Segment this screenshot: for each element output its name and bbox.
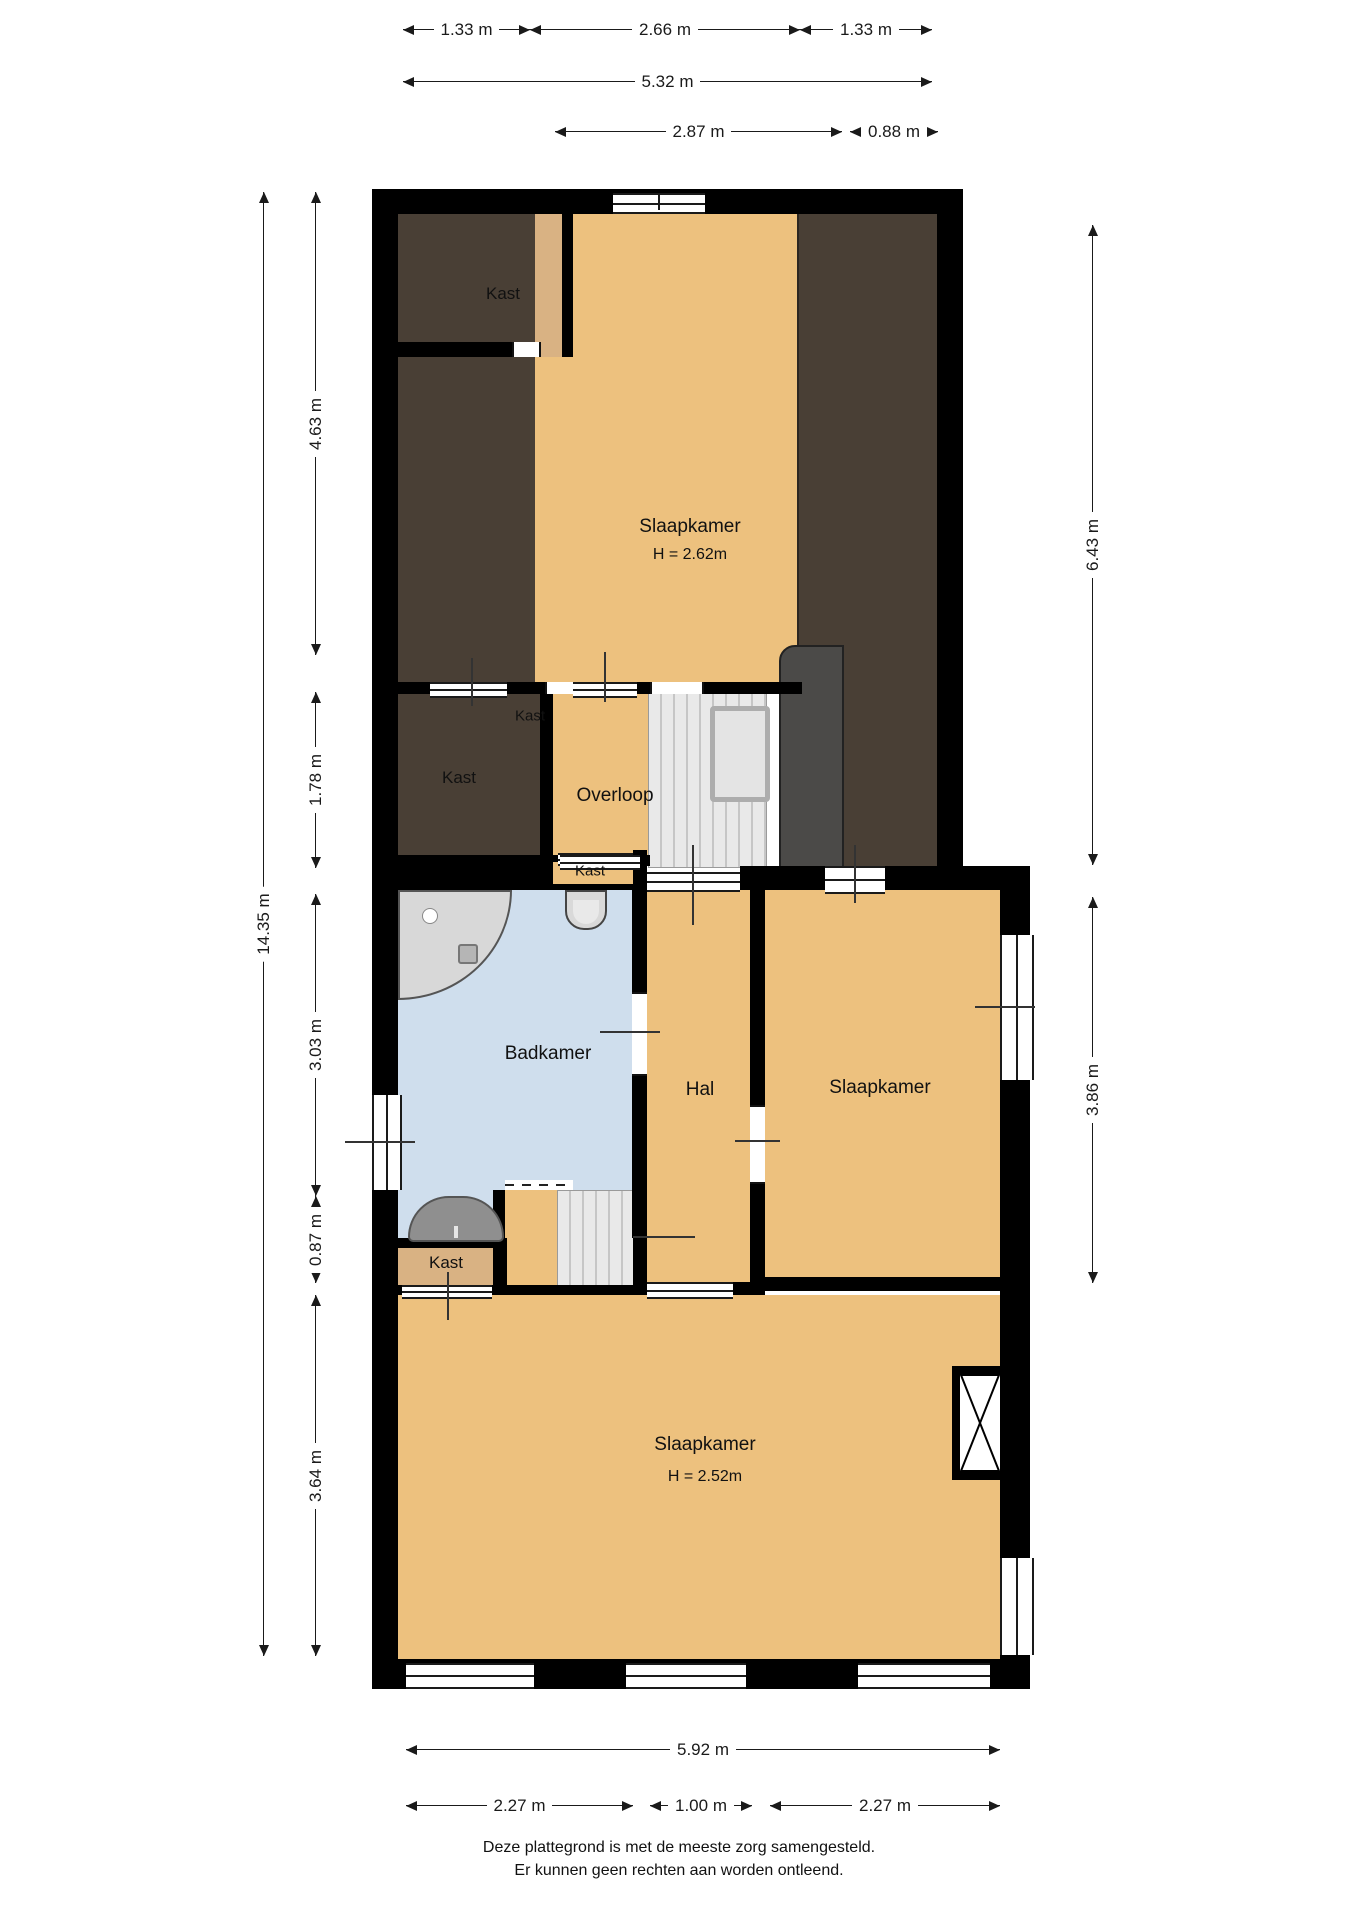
wall-attic-south — [637, 682, 650, 694]
dim-arrow — [406, 1745, 417, 1755]
dim-arrow — [311, 192, 321, 203]
window-symbol — [1000, 1558, 1034, 1655]
room-label-kast-mid: Kast — [442, 768, 476, 788]
dim-arrow — [989, 1745, 1000, 1755]
dim-arrow — [555, 127, 566, 137]
shower-head — [422, 908, 438, 924]
dim-arrow — [1088, 225, 1098, 236]
dim-arrow — [259, 192, 269, 203]
dim-label: 3.64 m — [306, 1443, 326, 1509]
door-symbol — [650, 682, 704, 694]
dim-arrow — [403, 25, 414, 35]
dim-arrow — [311, 1272, 321, 1283]
wall-lower-north — [740, 866, 825, 890]
dim-arrow — [311, 1645, 321, 1656]
dim-arrow — [921, 25, 932, 35]
dim-arrow — [311, 1196, 321, 1207]
dim-label: 14.35 m — [254, 886, 274, 961]
floorplan-sheet: Kast Slaapkamer H = 2.62m Kast Kast Over… — [0, 0, 1358, 1920]
dim-arrow — [311, 894, 321, 905]
dim-label: 2.27 m — [487, 1796, 553, 1816]
dim-label: 0.88 m — [861, 122, 927, 142]
center-tick — [345, 1141, 415, 1143]
wall-attic-south — [398, 682, 430, 694]
room-label-kast-hal: Kast — [575, 863, 605, 880]
shower-drain — [458, 944, 478, 964]
slaapkamer-attic-floor — [573, 214, 800, 357]
dim-arrow — [406, 1801, 417, 1811]
center-tick — [975, 1006, 1035, 1008]
wall-badkamer-right — [632, 890, 647, 992]
overloop-floor — [545, 692, 648, 855]
room-label-hal: Hal — [686, 1079, 715, 1101]
wall-slaapkamer-bottom-north — [492, 1285, 648, 1295]
door-swing-tick — [633, 1236, 695, 1238]
dim-arrow — [850, 127, 861, 137]
dim-arrow — [1088, 897, 1098, 908]
wall-lower-north — [398, 866, 553, 890]
dim-arrow — [403, 77, 414, 87]
wall-kast-attic — [398, 342, 512, 357]
room-label-badkamer: Badkamer — [505, 1043, 592, 1065]
dim-arrow — [311, 644, 321, 655]
dim-label: 2.87 m — [666, 122, 732, 142]
dim-label: 1.33 m — [833, 20, 899, 40]
dim-arrow — [741, 1801, 752, 1811]
dim-arrow — [311, 857, 321, 868]
dim-label: 0.87 m — [306, 1207, 326, 1273]
dim-arrow — [1088, 854, 1098, 865]
dim-arrow — [311, 692, 321, 703]
door-threshold-symbol — [647, 1282, 733, 1299]
dim-label: 1.00 m — [668, 1796, 734, 1816]
room-label-kast-bottom: Kast — [429, 1253, 463, 1273]
wall-right-upper — [937, 189, 963, 890]
dim-arrow — [259, 1645, 269, 1656]
room-label-kast-attic: Kast — [486, 284, 520, 304]
dim-arrow — [530, 25, 541, 35]
center-tick — [692, 845, 694, 925]
window-symbol — [858, 1663, 990, 1689]
wall-kast-attic-right — [562, 214, 573, 357]
door-symbol — [512, 342, 541, 357]
dim-label: 1.78 m — [306, 747, 326, 813]
wall-attic-south — [700, 682, 802, 694]
wall-left — [372, 189, 398, 1689]
wall-kast-hal — [540, 850, 553, 890]
railing-symbol — [710, 706, 770, 802]
dim-label: 3.03 m — [306, 1012, 326, 1078]
dim-arrow — [989, 1801, 1000, 1811]
center-tick — [471, 658, 473, 706]
dim-arrow — [519, 25, 530, 35]
stairs-down-symbol — [557, 1190, 635, 1287]
dim-label: 3.86 m — [1083, 1057, 1103, 1123]
kast-attic-floor — [535, 214, 562, 357]
dim-arrow — [311, 1185, 321, 1196]
dim-arrow — [800, 25, 811, 35]
room-label-slaapkamer-attic: Slaapkamer — [639, 516, 740, 538]
wall-slaapkamer-right-south — [765, 1277, 1000, 1291]
room-height-slaapkamer-bottom: H = 2.52m — [668, 1468, 742, 1486]
dim-label: 1.33 m — [434, 20, 500, 40]
dim-label: 5.92 m — [670, 1740, 736, 1760]
center-tick — [600, 1031, 660, 1033]
dim-arrow — [650, 1801, 661, 1811]
stair-landing-floor — [505, 1190, 557, 1285]
footer-disclaimer: Deze plattegrond is met de meeste zorg s… — [0, 1836, 1358, 1882]
wall-hal-east — [750, 890, 765, 1105]
room-label-kast-mid-small: Kast — [515, 708, 545, 725]
dim-label: 5.32 m — [635, 72, 701, 92]
chimney-breast-symbol — [779, 645, 844, 870]
dim-label: 4.63 m — [306, 391, 326, 457]
door-symbol — [750, 1105, 765, 1184]
window-symbol — [626, 1663, 746, 1689]
dim-arrow — [311, 1295, 321, 1306]
center-tick — [604, 652, 606, 702]
dim-label: 2.27 m — [852, 1796, 918, 1816]
window-symbol — [430, 682, 507, 698]
dim-arrow — [831, 127, 842, 137]
dim-arrow — [770, 1801, 781, 1811]
chimney-symbol — [960, 1374, 1000, 1472]
window-symbol — [406, 1663, 534, 1689]
dim-arrow — [927, 127, 938, 137]
dim-label: 2.66 m — [632, 20, 698, 40]
open-edge-dashed — [505, 1180, 573, 1190]
center-tick — [854, 845, 856, 903]
room-label-slaapkamer-bottom: Slaapkamer — [654, 1434, 755, 1456]
dim-label: 6.43 m — [1083, 512, 1103, 578]
room-label-overloop: Overloop — [576, 785, 653, 807]
footer-line-2: Er kunnen geen rechten aan worden ontlee… — [0, 1859, 1358, 1882]
toilet-symbol — [565, 890, 607, 930]
center-tick — [447, 1272, 449, 1320]
door-symbol — [632, 992, 647, 1076]
door-swing-tick — [735, 1140, 780, 1142]
footer-line-1: Deze plattegrond is met de meeste zorg s… — [0, 1836, 1358, 1859]
room-height-slaapkamer-attic: H = 2.62m — [653, 546, 727, 564]
wall-hal-east — [750, 1180, 765, 1285]
room-label-slaapkamer-right: Slaapkamer — [829, 1077, 930, 1099]
dim-arrow — [622, 1801, 633, 1811]
dim-arrow — [1088, 1272, 1098, 1283]
window-divider — [658, 193, 660, 210]
dim-arrow — [921, 77, 932, 87]
wall-lower-north — [885, 866, 1000, 890]
dim-arrow — [789, 25, 800, 35]
